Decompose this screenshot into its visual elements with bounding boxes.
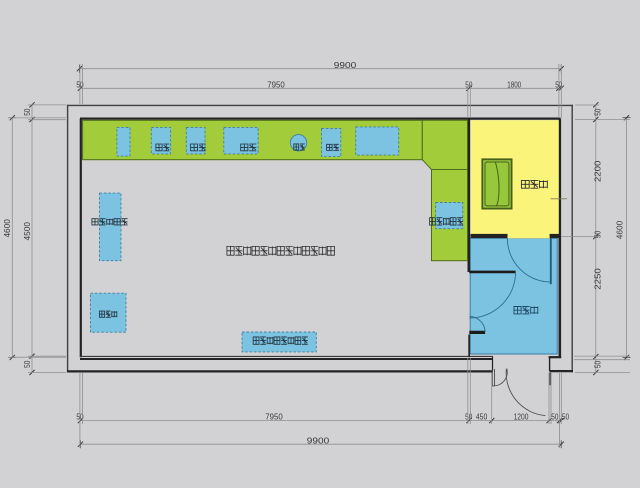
svg-text:50: 50 (465, 412, 472, 422)
svg-text:50: 50 (551, 412, 558, 422)
svg-text:50: 50 (22, 108, 32, 115)
svg-text:2200: 2200 (593, 160, 603, 182)
svg-text:50: 50 (593, 231, 603, 238)
svg-text:1800: 1800 (507, 79, 521, 89)
svg-text:4600: 4600 (2, 219, 12, 238)
svg-text:4600: 4600 (615, 221, 625, 240)
svg-text:50: 50 (593, 361, 603, 368)
svg-text:50: 50 (593, 108, 603, 115)
svg-text:2250: 2250 (593, 268, 603, 290)
svg-text:450: 450 (476, 412, 488, 422)
svg-text:4500: 4500 (22, 222, 32, 241)
svg-text:9900: 9900 (334, 60, 357, 70)
svg-text:7950: 7950 (267, 79, 285, 89)
svg-text:50: 50 (562, 412, 569, 422)
svg-text:9900: 9900 (307, 435, 330, 445)
svg-text:50: 50 (22, 361, 32, 368)
svg-text:1200: 1200 (514, 412, 529, 422)
svg-text:7950: 7950 (265, 412, 283, 422)
svg-text:50: 50 (465, 79, 472, 89)
